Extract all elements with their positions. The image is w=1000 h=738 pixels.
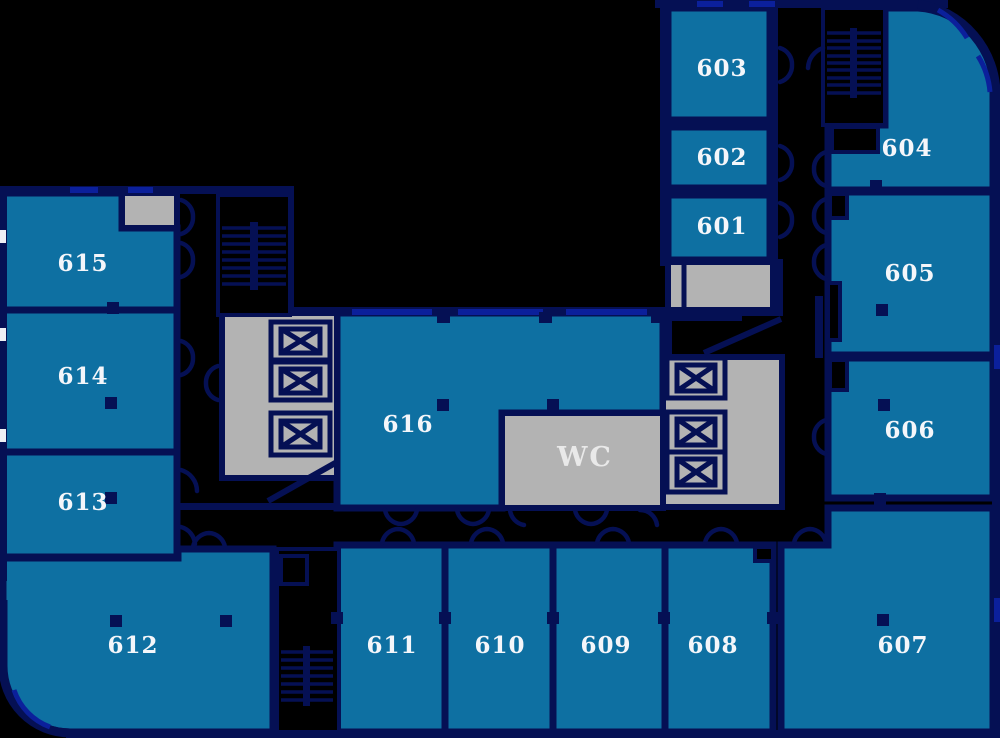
label-614: 614	[57, 363, 108, 390]
lobby-wall-a	[664, 313, 672, 359]
label-610: 610	[474, 632, 525, 659]
elevator-shaft-icon	[667, 412, 725, 452]
closet-606	[830, 360, 847, 390]
label-603: 603	[696, 55, 747, 82]
stairwell-northeast	[823, 8, 885, 125]
elevator-shaft-icon	[271, 362, 330, 400]
label-601: 601	[696, 213, 747, 240]
closet-604	[832, 127, 878, 152]
label-616: 616	[382, 411, 433, 438]
notch-608	[755, 547, 773, 561]
stair-divider	[850, 28, 857, 98]
label-607: 607	[877, 632, 928, 659]
outer-wall-west	[0, 186, 7, 581]
elevator-shaft-icon	[271, 322, 330, 360]
floor-plan-svg: 615 614 613 612 611 610 609 608 607 616 …	[0, 0, 1000, 738]
niche-605	[828, 283, 840, 340]
label-615: 615	[57, 250, 108, 277]
stair-divider	[303, 646, 310, 706]
stairwell-northwest	[218, 195, 290, 315]
stair-divider	[250, 222, 258, 290]
corridor-wall-601-column	[770, 0, 778, 313]
label-608: 608	[687, 632, 738, 659]
elevator-shaft-icon	[667, 452, 725, 492]
label-606: 606	[884, 417, 935, 444]
stair-closet	[281, 556, 307, 584]
label-wc: WC	[556, 442, 613, 473]
stairwell-south	[277, 549, 339, 732]
label-605: 605	[884, 260, 935, 287]
corridor-wall-south-of-lobby	[177, 503, 340, 510]
floor-plan-canvas: 615 614 613 612 611 610 609 608 607 616 …	[0, 0, 1000, 738]
label-609: 609	[580, 632, 631, 659]
wall-right-wing-west	[660, 0, 668, 266]
label-612: 612	[107, 632, 158, 659]
service-closet-615	[122, 193, 177, 228]
elevator-shaft-icon	[667, 358, 725, 398]
label-604: 604	[881, 135, 932, 162]
closet-605-top	[830, 194, 847, 218]
outer-wall-east	[992, 95, 1000, 738]
wall-opening	[0, 230, 6, 243]
corridor-niche-wall	[815, 296, 823, 358]
label-602: 602	[696, 144, 747, 171]
wall-opening	[0, 328, 6, 341]
label-613: 613	[57, 489, 108, 516]
elevator-shaft-icon	[271, 413, 330, 455]
outer-wall-south	[66, 730, 1000, 738]
label-611: 611	[366, 632, 417, 659]
wall-opening	[0, 429, 6, 442]
